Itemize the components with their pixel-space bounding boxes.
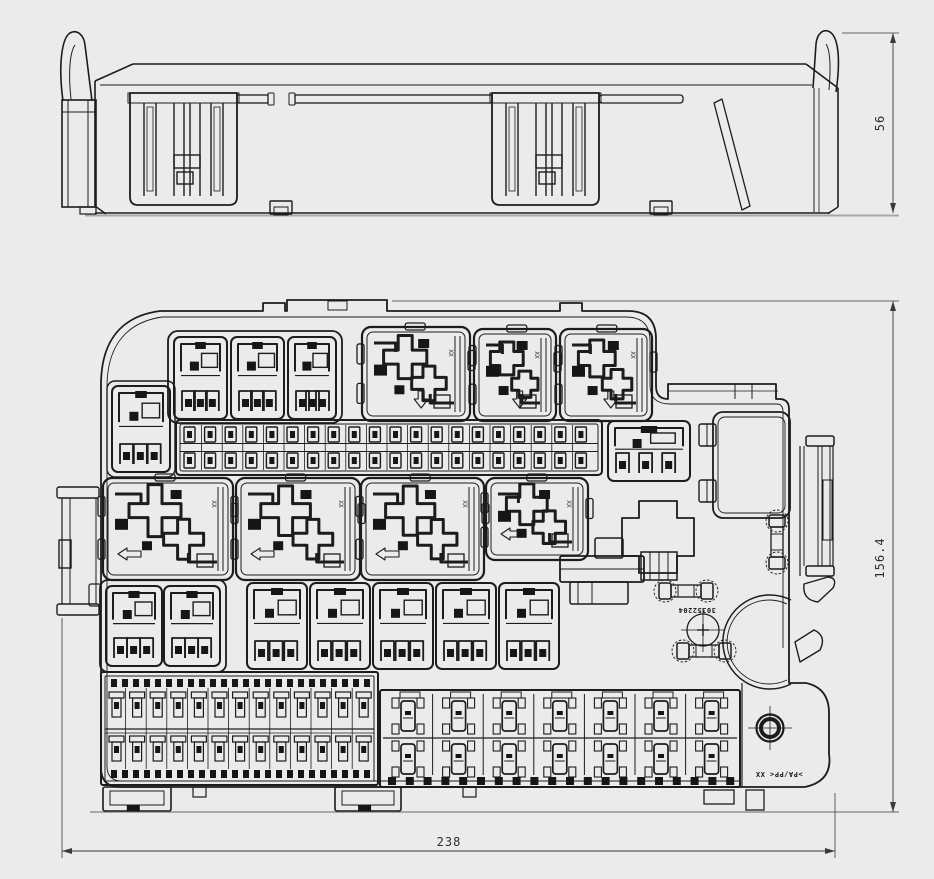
filled-pad [228, 457, 233, 464]
terminal-body [553, 701, 567, 731]
socket-key [252, 342, 263, 349]
terminal-pad [341, 702, 346, 709]
block-top-key [653, 692, 673, 698]
socket-window [651, 433, 676, 443]
terminal-bracket [493, 741, 500, 751]
terminal-cell-large [544, 741, 576, 777]
block-tooth [287, 770, 293, 778]
terminal-bar [253, 736, 268, 742]
terminal-bar [294, 736, 309, 742]
tab-slot [59, 540, 71, 568]
bottom-small-tab [704, 790, 734, 804]
dimension-arrowhead [890, 203, 896, 213]
terminal-bracket [696, 698, 703, 708]
block-tooth [122, 679, 128, 687]
terminal-bracket [619, 767, 626, 777]
block-tooth [353, 679, 359, 687]
socket-tooth-pad [137, 452, 144, 460]
relay-socket-small [247, 583, 307, 669]
block-tooth [199, 770, 205, 778]
relay-socket-small [106, 586, 162, 666]
tab-notch [127, 805, 140, 811]
terminal-pad [155, 746, 160, 753]
fuse-slot [346, 425, 360, 470]
socket-key [334, 588, 346, 595]
socket-window [259, 353, 275, 367]
fuse-slot [284, 425, 298, 470]
terminal-cell [336, 692, 351, 717]
socket-pad [171, 490, 182, 499]
terminal-pad [405, 711, 411, 715]
terminal-bracket [544, 767, 551, 777]
terminal-pad [456, 711, 462, 715]
terminal-pad [607, 754, 613, 758]
block-tooth [331, 770, 337, 778]
block-tooth [111, 770, 117, 778]
filled-pad [228, 431, 233, 438]
bracket-flange [128, 93, 239, 103]
filled-pad [517, 457, 522, 464]
block-top-key [552, 692, 572, 698]
fuse-slot [366, 425, 380, 470]
socket-key [397, 588, 409, 595]
terminal-bracket [468, 698, 475, 708]
socket-window [467, 600, 485, 615]
block-tooth [199, 679, 205, 687]
socket-tooth-pad [350, 649, 357, 657]
block-tooth [144, 679, 150, 687]
mounting-rail [599, 95, 683, 103]
socket-pad [454, 609, 463, 618]
socket-tooth-pad [123, 452, 130, 460]
socket-tooth-pad [476, 649, 483, 657]
socket-tooth-pad [209, 399, 216, 407]
terminal-body [654, 701, 668, 731]
terminal-cell [212, 736, 227, 761]
block-tooth [144, 770, 150, 778]
filled-pad [208, 431, 213, 438]
block-top-key [501, 692, 521, 698]
side-mount-tab-left [57, 487, 101, 615]
terminal-cell-large [392, 698, 424, 734]
block-tooth [155, 770, 161, 778]
fuse-slot [408, 425, 422, 470]
socket-tooth-pad [197, 399, 204, 407]
socket-window [193, 602, 210, 616]
cross-pad-outline [622, 501, 694, 573]
fuse-slot [552, 425, 566, 470]
terminal-bar [109, 692, 124, 698]
socket-tooth-pad [287, 649, 294, 657]
socket-pad [115, 519, 128, 530]
terminal-cell-large [645, 698, 677, 734]
block-tooth [210, 679, 216, 687]
terminal-cell-large [696, 741, 728, 777]
fuse-slot [572, 425, 586, 470]
terminal-cell-large [645, 741, 677, 777]
socket-tooth-pad [254, 399, 261, 407]
socket-mark: XX [447, 349, 454, 357]
socket-pad [328, 609, 337, 618]
terminal-body [654, 744, 668, 774]
terminal-bracket [670, 741, 677, 751]
terminal-cell [315, 692, 330, 717]
socket-maze [115, 494, 141, 503]
socket-pad [486, 366, 499, 377]
terminal-bar [171, 692, 186, 698]
bottom-small-tab [746, 790, 764, 810]
terminal-body [705, 701, 719, 731]
block-tooth [166, 770, 172, 778]
filled-pad [269, 457, 274, 464]
relay-socket-small [112, 386, 170, 472]
socket-tooth-pad [539, 649, 546, 657]
relay-socket-small [373, 583, 433, 669]
socket-key [307, 342, 317, 349]
terminal-cell [253, 692, 268, 717]
terminal-cell [150, 692, 165, 717]
block-tooth [232, 679, 238, 687]
mounting-rail [237, 95, 268, 103]
relay-socket-small [288, 337, 336, 419]
terminal-bar [336, 736, 351, 742]
tab-inner [342, 791, 394, 805]
block-tooth [210, 770, 216, 778]
fuse-slot [511, 425, 525, 470]
fuse-strip [176, 420, 602, 475]
socket-key [186, 591, 197, 598]
block-tooth [298, 679, 304, 687]
top-bump-notch [328, 301, 347, 310]
block-tooth [691, 777, 699, 785]
terminal-bracket [468, 724, 475, 734]
socket-pad [123, 610, 132, 619]
dim-plan-height-label: 156.4 [873, 537, 887, 578]
block-top-key [400, 692, 420, 698]
terminal-bracket [645, 698, 652, 708]
cross-pad [622, 501, 694, 580]
terminal-bar [233, 736, 248, 742]
terminal-cell [109, 692, 124, 717]
terminal-pad [279, 702, 284, 709]
relay-socket-small [231, 337, 284, 419]
terminal-bar [253, 692, 268, 698]
block-tooth [637, 777, 645, 785]
socket-tooth-pad [188, 646, 195, 654]
terminal-pad [135, 746, 140, 753]
terminal-bracket [569, 767, 576, 777]
terminal-cell [212, 692, 227, 717]
terminal-bracket [544, 698, 551, 708]
terminal-bracket [443, 724, 450, 734]
filled-pad [249, 457, 254, 464]
block-tooth [177, 770, 183, 778]
direction-arrow-left [118, 548, 141, 560]
mounting-bracket [128, 93, 239, 205]
terminal-bar [212, 736, 227, 742]
channel-slot [576, 107, 582, 191]
socket-window [202, 353, 218, 367]
socket-maze [418, 520, 457, 559]
terminal-bar [274, 692, 289, 698]
terminal-cell [130, 692, 145, 717]
block-tooth [265, 679, 271, 687]
terminal-bracket [417, 767, 424, 777]
terminal-pad [361, 746, 366, 753]
terminal-bracket [645, 741, 652, 751]
terminal-bar [191, 692, 206, 698]
block-tooth [726, 777, 734, 785]
terminal-pad [557, 711, 563, 715]
block-tooth [320, 770, 326, 778]
terminal-bar [191, 736, 206, 742]
socket-pad [394, 385, 404, 394]
terminal-cell-large [443, 741, 475, 777]
terminal-pad [238, 746, 243, 753]
terminal-bracket [696, 741, 703, 751]
terminal-bracket [594, 698, 601, 708]
terminal-pad [607, 711, 613, 715]
rail-end-cap [268, 93, 274, 105]
filled-pad [537, 431, 542, 438]
tab-notch [358, 805, 371, 811]
block-tooth [342, 770, 348, 778]
right-latch-tab-inner [826, 44, 830, 90]
cover-plate-outline [713, 412, 790, 518]
block-tooth [276, 679, 282, 687]
terminal-body [452, 701, 466, 731]
terminal-pad [114, 702, 119, 709]
fuse-slot [449, 425, 463, 470]
terminal-bracket [518, 741, 525, 751]
terminal-pad [196, 702, 201, 709]
socket-maze [248, 494, 273, 503]
dimension-arrowhead [825, 848, 835, 854]
terminal-cell [315, 736, 330, 761]
terminal-cell [191, 692, 206, 717]
filled-pad [187, 457, 192, 464]
terminal-cell [274, 736, 289, 761]
filled-pad [558, 431, 563, 438]
block-tooth [276, 770, 282, 778]
terminal-bracket [569, 698, 576, 708]
filled-pad [208, 457, 213, 464]
terminal-cell [150, 736, 165, 761]
filled-pad [393, 431, 398, 438]
terminal-body [452, 744, 466, 774]
filled-pad [475, 431, 480, 438]
terminal-pad [258, 702, 263, 709]
socket-mark: XX [461, 500, 468, 508]
socket-window [278, 600, 296, 615]
terminal-cell [356, 736, 371, 761]
block-tooth [188, 770, 194, 778]
block-tooth [254, 679, 260, 687]
terminal-bracket [443, 741, 450, 751]
terminal-body [553, 744, 567, 774]
filled-pad [249, 431, 254, 438]
top-right-bevel [806, 64, 838, 88]
side-view-top [61, 31, 899, 216]
terminal-bracket [392, 767, 399, 777]
terminal-bracket [594, 767, 601, 777]
bottom-small-tab [193, 787, 206, 797]
socket-window [530, 600, 548, 615]
socket-tooth-pad [130, 646, 137, 654]
terminal-cell [171, 736, 186, 761]
filled-pad [352, 457, 357, 464]
socket-pad [181, 610, 190, 619]
left-end-bracket-foot [80, 207, 96, 214]
fuse-slot [305, 425, 319, 470]
socket-maze [293, 519, 333, 559]
filled-pad [311, 431, 316, 438]
socket-pad [273, 541, 283, 550]
socket-mark: XX [629, 351, 636, 359]
socket-pad [300, 490, 311, 499]
terminal-bar [130, 692, 145, 698]
terminal-bracket [417, 724, 424, 734]
fuse-slot [243, 425, 257, 470]
socket-tooth-pad [665, 461, 672, 469]
material-mark-text: >PA/PP< XX [755, 770, 802, 778]
terminal-body [401, 744, 415, 774]
terminal-pad [176, 746, 181, 753]
terminal-pad [709, 754, 715, 758]
terminal-pad [114, 746, 119, 753]
fusebox-technical-drawing: XXXXXXXXXXXXXX 56 156.4 238 30352204 >PA… [0, 0, 934, 879]
fuse-strip-outline [176, 420, 602, 475]
filled-pad [311, 457, 316, 464]
block-tooth [708, 777, 716, 785]
terminal-pad [361, 702, 366, 709]
relay-socket-large: XX [356, 474, 489, 580]
filled-pad [558, 457, 563, 464]
rail-slot [823, 480, 832, 540]
relay-socket-small [310, 583, 370, 669]
socket-tooth-pad [151, 452, 158, 460]
filled-pad [578, 431, 583, 438]
direction-arrow-down [414, 391, 428, 408]
dimension-arrowhead [62, 848, 72, 854]
terminal-bar [171, 736, 186, 742]
socket-mark: XX [210, 500, 217, 508]
block-tooth [530, 777, 538, 785]
terminal-pad [557, 754, 563, 758]
filled-pad [434, 457, 439, 464]
terminal-body [705, 744, 719, 774]
dim-side-height-label: 56 [873, 115, 887, 131]
terminal-bracket [392, 724, 399, 734]
fuse-slot [387, 425, 401, 470]
retainer-clip [766, 510, 788, 574]
relay-socket-small [499, 583, 559, 669]
socket-window [341, 600, 359, 615]
socket-maze [373, 494, 398, 503]
part-number-text: 30352204 [678, 606, 716, 614]
socket-key [128, 591, 139, 598]
terminal-bracket [518, 698, 525, 708]
terminal-pad [506, 711, 512, 715]
terminal-cell [294, 736, 309, 761]
socket-tooth-pad [185, 399, 192, 407]
block-tooth [298, 770, 304, 778]
socket-tooth-pad [273, 649, 280, 657]
block-tooth [342, 679, 348, 687]
terminal-bar [109, 736, 124, 742]
terminal-bracket [721, 767, 728, 777]
clip-end [701, 583, 713, 599]
block-tooth [309, 770, 315, 778]
terminal-cell-large [696, 698, 728, 734]
socket-key [523, 588, 535, 595]
clip-end [677, 643, 689, 659]
socket-pad [539, 490, 550, 499]
housing-outline-inner [107, 317, 740, 781]
block-tooth [459, 777, 467, 785]
block-tooth [221, 770, 227, 778]
terminal-pad [155, 702, 160, 709]
channel-slot [147, 107, 153, 191]
socket-pad [248, 519, 261, 530]
block-tooth [177, 679, 183, 687]
terminal-bracket [443, 767, 450, 777]
relay-socket-large: XX [555, 325, 657, 421]
socket-maze [506, 484, 547, 525]
clip-end [659, 583, 671, 599]
socket-tooth-pad [384, 649, 391, 657]
block-tooth [602, 777, 610, 785]
filled-pad [496, 431, 501, 438]
channel-crossbar [536, 155, 562, 168]
relay-socket-small [608, 421, 690, 481]
filled-pad [393, 457, 398, 464]
filled-pad [290, 457, 295, 464]
left-end-bracket [62, 100, 96, 207]
socket-tooth-pad [266, 399, 273, 407]
terminal-bar [130, 736, 145, 742]
block-tooth [424, 777, 432, 785]
terminal-body [603, 744, 617, 774]
terminal-bar [150, 736, 165, 742]
cavity-tab [795, 630, 822, 662]
cover-plate [699, 412, 790, 518]
socket-tooth-pad [299, 399, 306, 407]
socket-pad [499, 386, 509, 395]
filled-pad [455, 457, 460, 464]
relay-socket-large: XX [357, 323, 475, 421]
terminal-bracket [670, 724, 677, 734]
block-top-key [602, 692, 622, 698]
left-latch-tab-inner [70, 45, 75, 99]
filled-pad [517, 431, 522, 438]
terminal-pad [135, 702, 140, 709]
filled-pad [475, 457, 480, 464]
socket-window [142, 403, 159, 418]
socket-pad [302, 362, 311, 371]
filled-pad [331, 457, 336, 464]
dimension-arrowhead [890, 33, 896, 43]
socket-pad [129, 412, 138, 421]
terminal-body [502, 744, 516, 774]
terminal-pad [196, 746, 201, 753]
socket-key [195, 342, 206, 349]
socket-pad [247, 362, 256, 371]
socket-tooth-pad [201, 646, 208, 654]
socket-tooth-pad [399, 649, 406, 657]
terminal-cell [191, 736, 206, 761]
terminal-bar [233, 692, 248, 698]
